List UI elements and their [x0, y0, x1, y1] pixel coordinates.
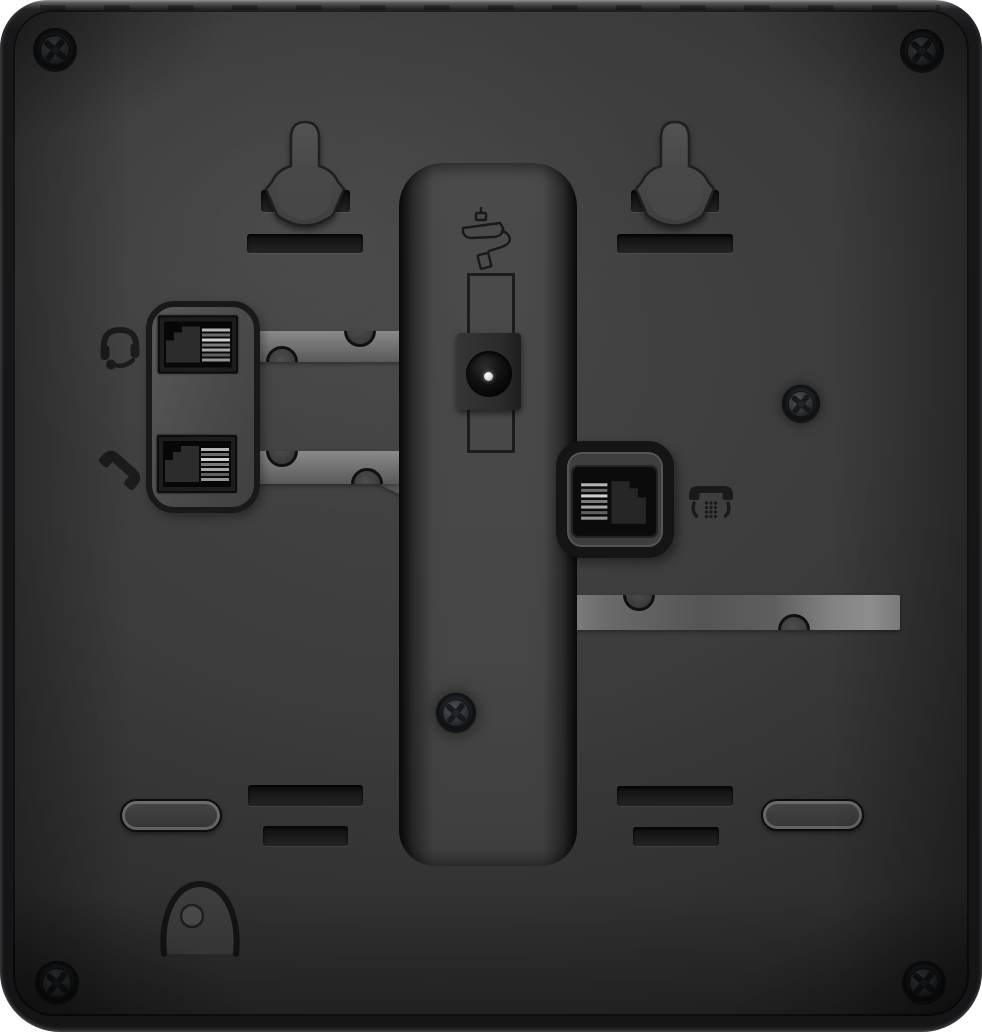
corner-screw-top-right — [899, 28, 945, 74]
power-adapter-icon — [456, 204, 520, 274]
foot-left — [120, 799, 222, 832]
phone-back-shell — [0, 0, 982, 1032]
cable-channel-line — [543, 595, 900, 630]
wall-mount-keyhole-right — [615, 116, 735, 238]
foot-right — [761, 799, 864, 831]
mount-bar-slot-left — [247, 234, 363, 253]
dc-power-jack — [457, 333, 521, 410]
panel-screw-right — [781, 384, 821, 424]
corner-screw-top-left — [32, 27, 78, 73]
bottom-slot — [617, 786, 733, 806]
mount-bar-slot-right — [617, 234, 733, 253]
cable-channel-handset — [244, 451, 406, 484]
cable-clip-notch — [344, 331, 376, 347]
kickstand-screw — [435, 692, 477, 734]
headset-icon — [97, 320, 143, 372]
desk-phone-icon — [685, 482, 737, 522]
dc-jack-pin — [484, 372, 493, 381]
headset-port — [156, 313, 240, 376]
bottom-slot — [633, 827, 719, 846]
bottom-slot — [248, 785, 363, 806]
handset-icon — [96, 444, 144, 496]
top-vent-slits — [40, 5, 940, 10]
corner-screw-bottom-left — [34, 960, 80, 1006]
cable-clip-notch — [266, 346, 298, 362]
cable-clip-notch — [623, 595, 655, 611]
corner-screw-bottom-right — [901, 960, 947, 1006]
photo-canvas — [0, 0, 982, 1032]
cable-clip-notch — [266, 451, 298, 467]
cable-clip-notch — [778, 614, 810, 630]
wall-mount-keyhole-left — [245, 116, 365, 238]
cable-hook-recess — [150, 870, 250, 958]
bottom-slot — [263, 826, 348, 846]
line-port — [571, 465, 658, 538]
cable-clip-notch — [351, 468, 383, 484]
handset-port — [155, 433, 239, 495]
